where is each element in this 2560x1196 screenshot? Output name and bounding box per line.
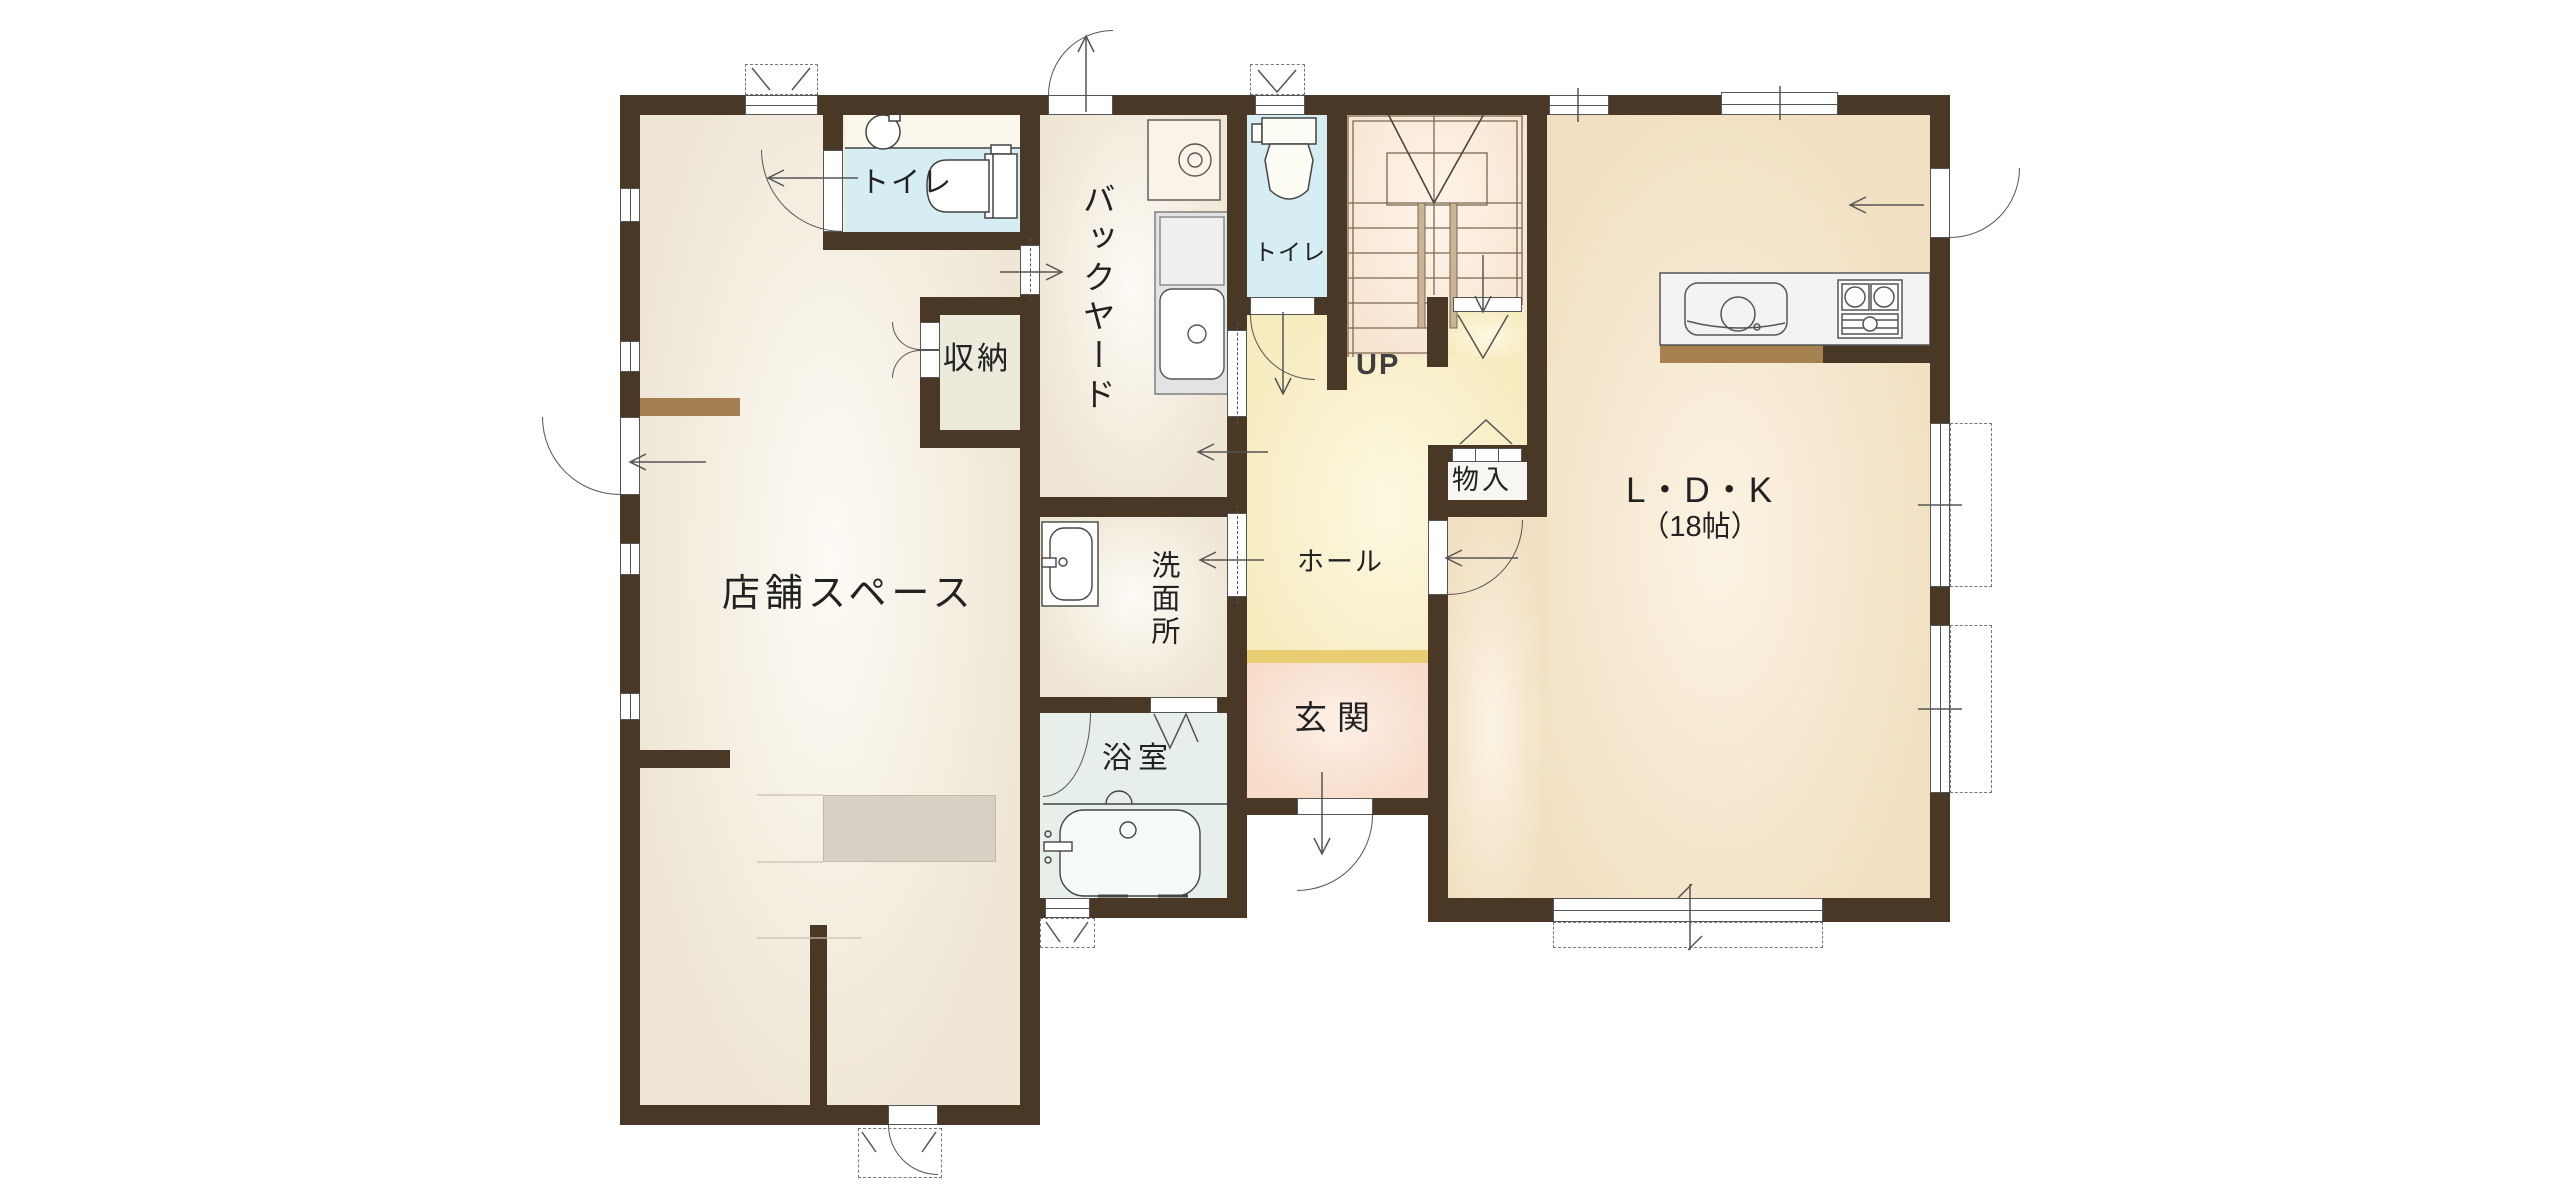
- label-storage: 収納: [943, 342, 1011, 376]
- label-ldk: L・D・K: [1580, 472, 1820, 511]
- label-hall: ホール: [1297, 548, 1384, 578]
- label-entrance: 玄関: [1294, 700, 1380, 736]
- floor-plan: 店舗スペース トイレ トイレ バックヤード 収納 物入 洗面所 ホール 浴室 玄…: [0, 0, 2560, 1196]
- annotation-overlay: [0, 0, 2560, 1196]
- label-toilet-center: トイレ: [1254, 240, 1326, 265]
- label-stairs-up: UP: [1356, 350, 1400, 382]
- label-shop: 店舗スペース: [722, 574, 975, 616]
- label-washroom: 洗面所: [1146, 550, 1178, 649]
- label-bathroom: 浴室: [1102, 742, 1174, 775]
- label-ldk-size: （18帖）: [1580, 512, 1820, 544]
- label-closet: 物入: [1452, 466, 1512, 496]
- label-toilet-left: トイレ: [860, 168, 953, 200]
- label-backyard: バックヤード: [1078, 182, 1114, 416]
